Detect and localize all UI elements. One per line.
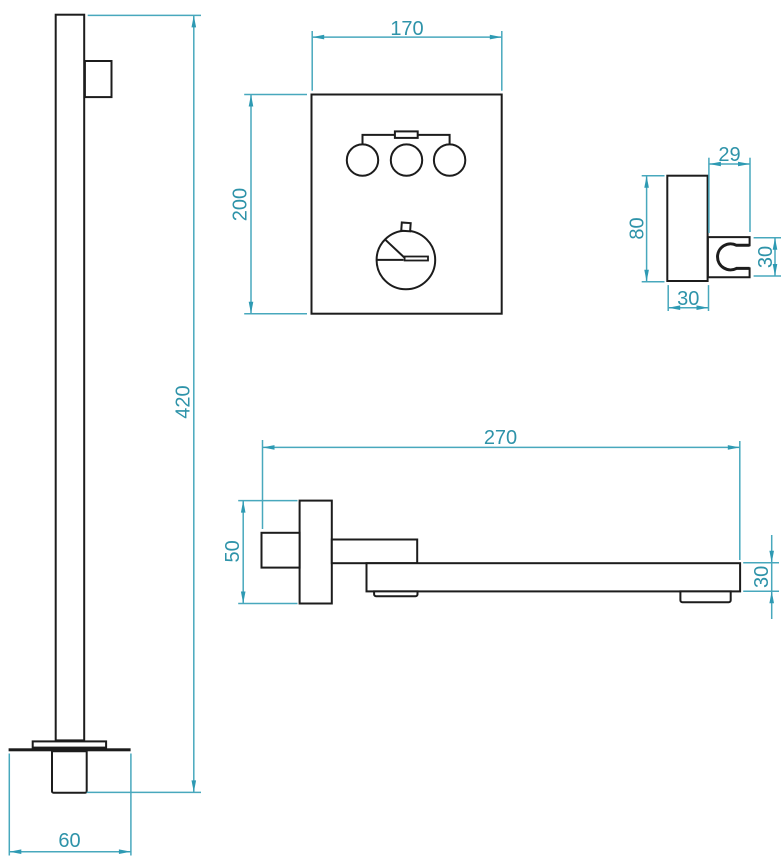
- svg-text:270: 270: [484, 427, 517, 449]
- svg-text:30: 30: [751, 566, 773, 588]
- svg-text:29: 29: [718, 144, 740, 166]
- svg-text:30: 30: [677, 288, 699, 310]
- svg-text:420: 420: [173, 385, 195, 418]
- svg-text:200: 200: [230, 188, 252, 221]
- svg-text:60: 60: [58, 830, 80, 852]
- svg-text:170: 170: [390, 18, 423, 40]
- svg-text:80: 80: [627, 217, 649, 239]
- svg-text:50: 50: [222, 540, 244, 562]
- svg-text:30: 30: [755, 246, 777, 268]
